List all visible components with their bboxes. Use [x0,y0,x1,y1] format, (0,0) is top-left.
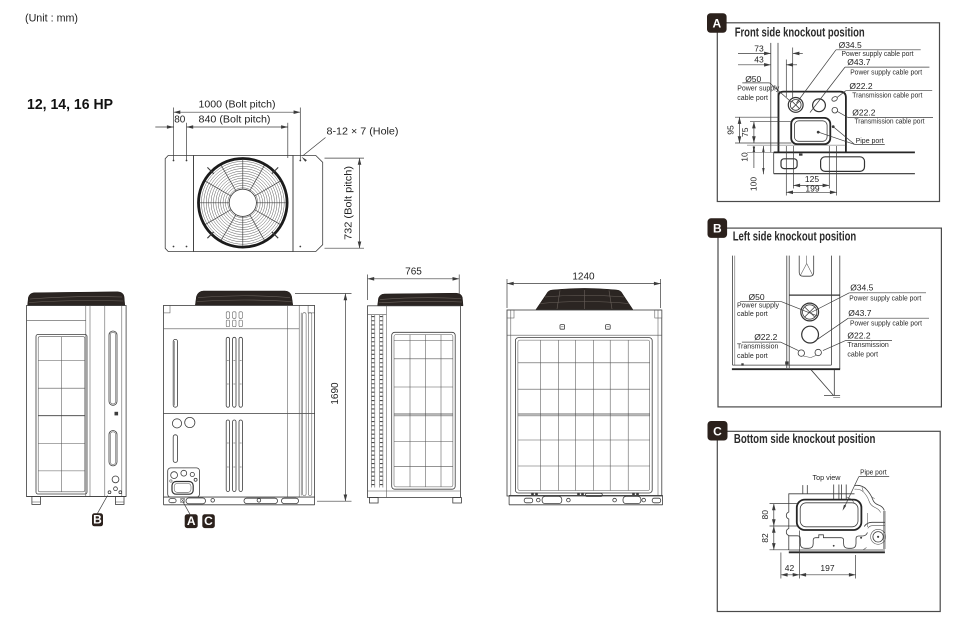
svg-text:199: 199 [805,184,819,194]
svg-text:B: B [93,513,102,527]
svg-text:100: 100 [749,177,759,191]
svg-text:C: C [204,514,213,528]
svg-text:125: 125 [805,174,819,184]
svg-text:75: 75 [740,127,750,137]
svg-text:765: 765 [405,267,422,278]
svg-text:12, 14, 16 HP: 12, 14, 16 HP [27,97,113,113]
svg-text:43: 43 [754,54,764,64]
svg-text:Ø22.2: Ø22.2 [847,330,870,340]
svg-text:C: C [713,424,722,438]
svg-text:cable port: cable port [847,351,878,358]
svg-text:Power supply: Power supply [737,85,780,92]
svg-text:B: B [713,222,722,236]
svg-text:Bottom side knockout position: Bottom side knockout position [734,432,876,446]
svg-text:42: 42 [785,563,795,573]
svg-text:Left side knockout position: Left side knockout position [733,230,857,244]
svg-text:Ø22.2: Ø22.2 [849,81,872,91]
svg-text:197: 197 [820,563,834,573]
svg-text:Transmission cable port: Transmission cable port [855,119,925,126]
svg-text:Front side knockout position: Front side knockout position [735,26,865,40]
svg-text:cable port: cable port [737,311,768,318]
svg-text:1690: 1690 [330,382,341,405]
svg-text:Transmission: Transmission [737,344,778,351]
svg-text:Ø50: Ø50 [749,292,765,302]
svg-text:A: A [187,514,196,528]
svg-text:80: 80 [174,115,186,126]
svg-text:840 (Bolt pitch): 840 (Bolt pitch) [199,115,271,126]
svg-text:82: 82 [760,533,770,543]
svg-text:Ø43.7: Ø43.7 [848,308,871,318]
svg-text:Pipe port: Pipe port [860,468,887,477]
svg-text:Ø50: Ø50 [745,74,761,84]
svg-text:(Unit : mm): (Unit : mm) [25,13,78,25]
svg-text:732 (Bolt pitch): 732 (Bolt pitch) [344,166,355,240]
svg-text:Power supply cable port: Power supply cable port [849,295,921,302]
svg-text:Power supply cable port: Power supply cable port [850,70,922,77]
svg-text:cable port: cable port [737,353,768,360]
svg-text:10: 10 [740,152,750,162]
svg-text:Ø34.5: Ø34.5 [850,282,873,292]
svg-text:8-12 × 7 (Hole): 8-12 × 7 (Hole) [327,127,399,138]
svg-text:95: 95 [726,125,736,135]
svg-text:80: 80 [760,510,770,520]
svg-text:cable port: cable port [737,95,768,102]
svg-text:Power supply: Power supply [737,302,780,309]
svg-text:Transmission: Transmission [847,342,888,349]
svg-text:Pipe port: Pipe port [856,136,885,145]
svg-text:Ø22.2: Ø22.2 [754,332,777,342]
svg-text:Ø34.5: Ø34.5 [839,40,862,50]
svg-text:Ø43.7: Ø43.7 [847,57,870,67]
svg-text:A: A [712,17,721,31]
svg-text:Transmission cable port: Transmission cable port [852,93,922,100]
svg-text:Ø22.2: Ø22.2 [852,108,875,118]
svg-text:1000 (Bolt pitch): 1000 (Bolt pitch) [199,100,276,111]
svg-text:Top view: Top view [813,473,842,482]
svg-text:1240: 1240 [572,272,595,283]
svg-text:Power supply cable port: Power supply cable port [850,321,922,328]
svg-text:73: 73 [754,43,764,53]
